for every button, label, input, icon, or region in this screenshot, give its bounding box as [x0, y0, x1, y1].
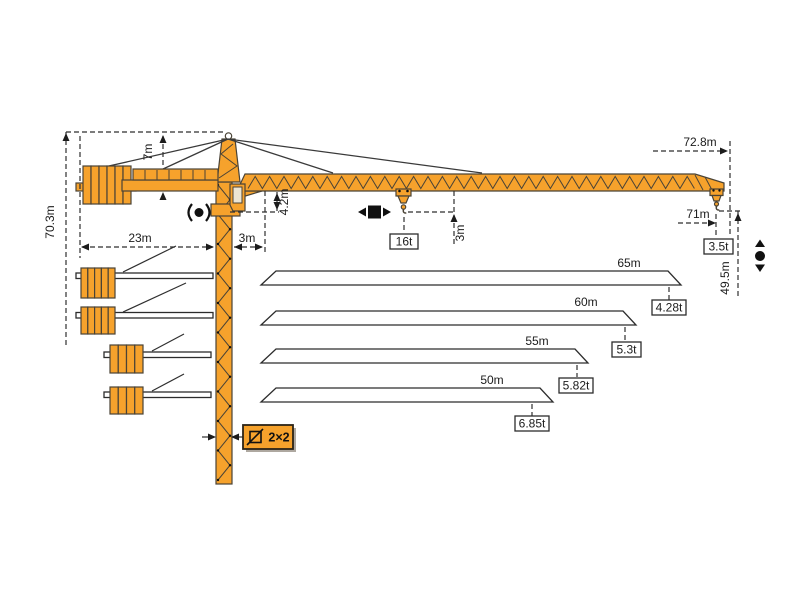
mast-joint	[217, 272, 219, 274]
capacity-box-60m: 5.3t	[612, 342, 641, 357]
tower-head-body	[217, 139, 240, 182]
counterweight-slab	[110, 387, 118, 414]
counterjib	[76, 166, 218, 204]
arrow-up	[755, 240, 765, 248]
slewing-icon	[189, 204, 210, 221]
hoist-icon	[755, 240, 765, 273]
mast-joint	[217, 449, 219, 451]
tip-hook-height-label: 49.5m	[718, 261, 732, 294]
cab-window	[233, 187, 242, 203]
mast-joint	[217, 331, 219, 333]
mast-joint	[229, 464, 231, 466]
capacity-value-60m: 5.3t	[616, 343, 637, 357]
load-curve-60m	[261, 311, 636, 325]
mast-cross-section-icon	[247, 429, 263, 445]
jib-length-label-55m: 55m	[525, 334, 548, 348]
dimension-arrowhead	[208, 434, 216, 441]
hook-icon	[403, 209, 406, 213]
capacity-value-65m: 4.28t	[656, 301, 683, 315]
jib-length-label-60m: 60m	[574, 295, 597, 309]
capacity-box-50m: 6.85t	[515, 416, 549, 431]
mast-joint	[229, 317, 231, 319]
arrow-left	[358, 208, 366, 217]
hook-block	[712, 196, 721, 202]
trolley-frame	[396, 189, 411, 196]
ballast-slab	[99, 166, 107, 204]
mast-joint	[217, 361, 219, 363]
tower-top-height-label: 7m	[141, 144, 155, 161]
trolley-frame	[710, 189, 723, 196]
jib-length-label-50m: 50m	[480, 373, 503, 387]
mast-joint	[217, 243, 219, 245]
tip-capacity-value: 3.5t	[708, 240, 729, 254]
mast-joint	[229, 287, 231, 289]
counterjib-girder	[122, 180, 218, 191]
counterjib-tie-outer	[100, 139, 228, 168]
trolley-mid	[396, 189, 411, 213]
hook-block	[398, 196, 409, 203]
dimension-arrowhead	[206, 244, 214, 251]
counterweight-slab	[101, 268, 108, 298]
mast-joint	[229, 405, 231, 407]
counterweight-slab	[127, 345, 135, 373]
trolley-wheel	[712, 189, 714, 191]
counterweight-slab	[110, 345, 118, 373]
hook-sheave	[401, 205, 405, 209]
jib-foot-height-label: 4.2m	[277, 189, 291, 216]
hoist-dot	[755, 251, 765, 261]
counterweight-slab	[81, 307, 88, 334]
trolley-square	[368, 206, 381, 219]
dimension-arrowhead	[735, 213, 742, 221]
mast-joint	[229, 346, 231, 348]
jib-length-label-65m: 65m	[617, 256, 640, 270]
dimension-arrowhead	[81, 244, 89, 251]
dimension-arrowhead	[63, 133, 70, 141]
counterweight-slab	[88, 307, 95, 334]
counterweight-leader	[123, 283, 186, 312]
capacity-box-tip: 3.5t	[704, 239, 733, 254]
counterweight-slab	[135, 387, 143, 414]
mast-joint	[229, 228, 231, 230]
total-height-label: 70.3m	[43, 205, 57, 238]
load-curve-55m	[261, 349, 588, 363]
arrow-right	[383, 208, 391, 217]
capacity-box-55m: 5.82t	[559, 378, 593, 393]
counterweight-leader	[123, 246, 176, 272]
trolley-travel-icon	[358, 206, 391, 219]
capacity-box-max: 16t	[390, 234, 418, 249]
trolley-wheel	[718, 189, 720, 191]
tower-mast	[216, 182, 232, 484]
mast-joint	[217, 302, 219, 304]
hook-sheave	[715, 202, 719, 206]
operator-cab	[230, 184, 245, 211]
load-curve-50m	[261, 388, 553, 402]
max-capacity-value: 16t	[396, 235, 413, 249]
counterweight-slab	[118, 345, 126, 373]
counterweight-slab	[88, 268, 95, 298]
trolley-wheel	[406, 190, 409, 193]
hook-to-jib-label: 3m	[453, 225, 467, 242]
counterweight-slab	[118, 387, 126, 414]
mast-section-callout: 2×2	[243, 425, 296, 452]
counterweight-slab	[135, 345, 143, 373]
load-curve-65m	[261, 271, 681, 285]
mast-joint	[229, 258, 231, 260]
tip-hook-radius-label: 71m	[686, 207, 709, 221]
mast-section-label: 2×2	[268, 431, 289, 445]
jib-tie-outer	[228, 139, 482, 173]
counterweight-slab	[95, 307, 102, 334]
apex-pulley	[225, 133, 231, 139]
counterweight-leader	[152, 374, 184, 391]
counterweight-slab	[95, 268, 102, 298]
dimension-arrowhead	[255, 244, 263, 251]
jib-tie-inner	[228, 139, 333, 173]
tie-bars	[100, 139, 482, 173]
capacity-box-65m: 4.28t	[652, 300, 686, 315]
slew-to-jib-foot-label: 3m	[239, 231, 256, 245]
capacity-value-50m: 6.85t	[519, 417, 546, 431]
dimension-arrowhead	[160, 135, 167, 143]
ballast-slab	[83, 166, 91, 204]
dimension-arrowhead	[160, 192, 167, 200]
counterweight-stacks	[76, 246, 213, 414]
diagram-canvas: 2×2 16t 3.5t 4.28t 5.3t 5.82t 6.85t 70.3…	[0, 0, 800, 600]
ballast-slab	[107, 166, 115, 204]
counterweight-slab	[127, 387, 135, 414]
hook-icon	[716, 206, 719, 210]
counterjib-radius-label: 23m	[128, 231, 151, 245]
trolley-wheel	[398, 190, 401, 193]
slew-arc-left	[189, 204, 193, 221]
ballast-slab	[91, 166, 99, 204]
dimension-arrowhead	[451, 214, 458, 222]
counterweight-slab	[101, 307, 108, 334]
mast-joint	[217, 390, 219, 392]
slew-dot	[195, 208, 204, 217]
crane-diagram: 2×2 16t 3.5t 4.28t 5.3t 5.82t 6.85t 70.3…	[0, 0, 800, 600]
load-chart	[261, 271, 681, 402]
counterweight-slab	[108, 307, 115, 334]
dimension-arrowhead	[720, 148, 728, 155]
counterweight-slab	[108, 268, 115, 298]
counterjib-tie-inner	[163, 139, 228, 169]
mast-joint	[217, 479, 219, 481]
mast-joint	[229, 376, 231, 378]
tip-radius-label: 72.8m	[683, 135, 716, 149]
mast-joint	[217, 420, 219, 422]
capacity-value-55m: 5.82t	[563, 379, 590, 393]
jib	[237, 174, 724, 199]
mast-joint	[229, 435, 231, 437]
trolley-tip	[710, 189, 723, 210]
counterweight-leader	[152, 334, 184, 351]
slew-arc-right	[206, 204, 210, 221]
counterweight-slab	[81, 268, 88, 298]
arrow-down	[755, 265, 765, 273]
